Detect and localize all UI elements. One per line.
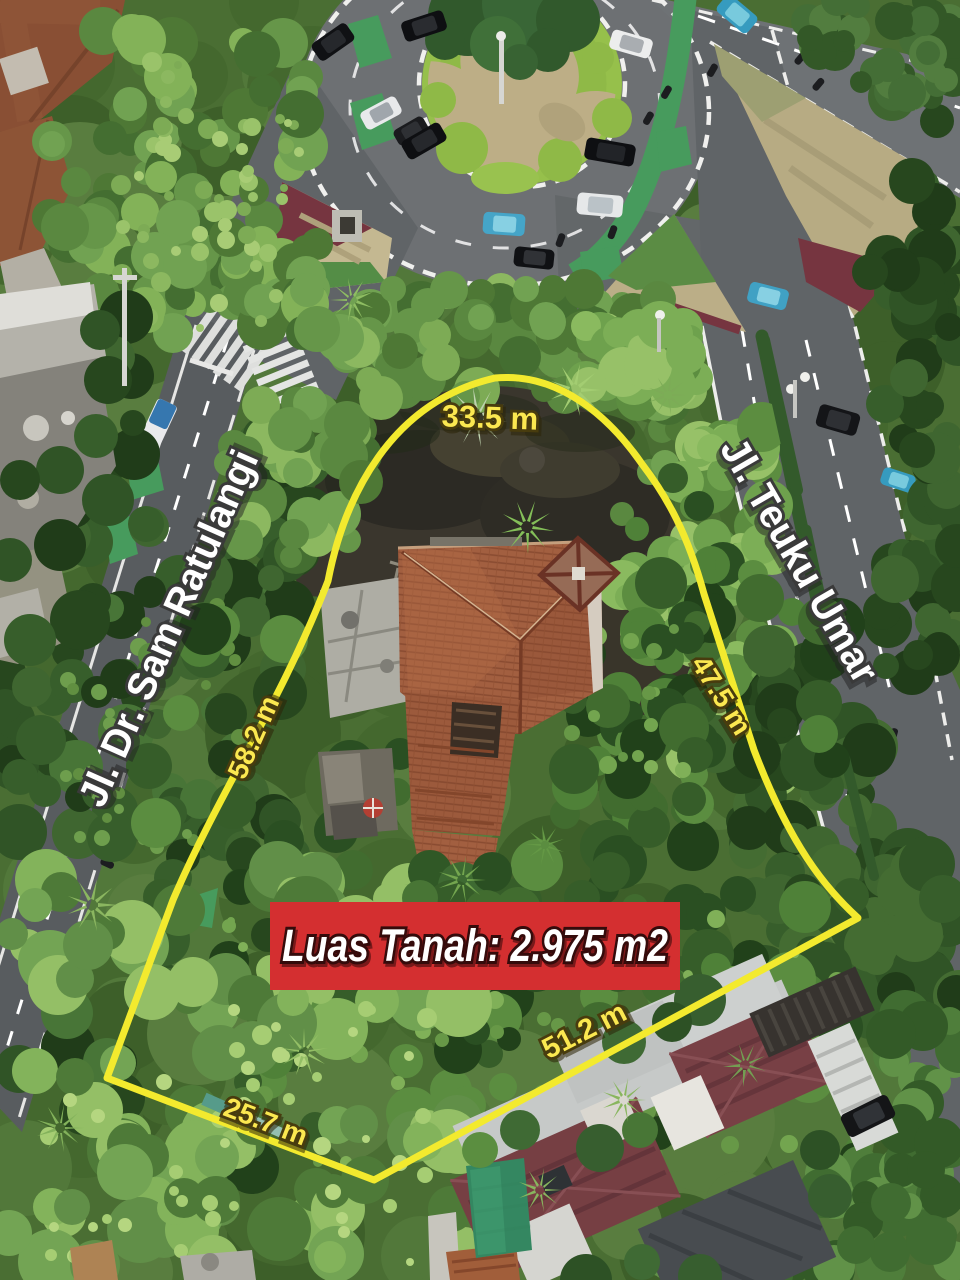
svg-text:33.5 m: 33.5 m — [441, 398, 539, 436]
svg-text:Luas Tanah: 2.975 m2: Luas Tanah: 2.975 m2 — [282, 920, 668, 971]
